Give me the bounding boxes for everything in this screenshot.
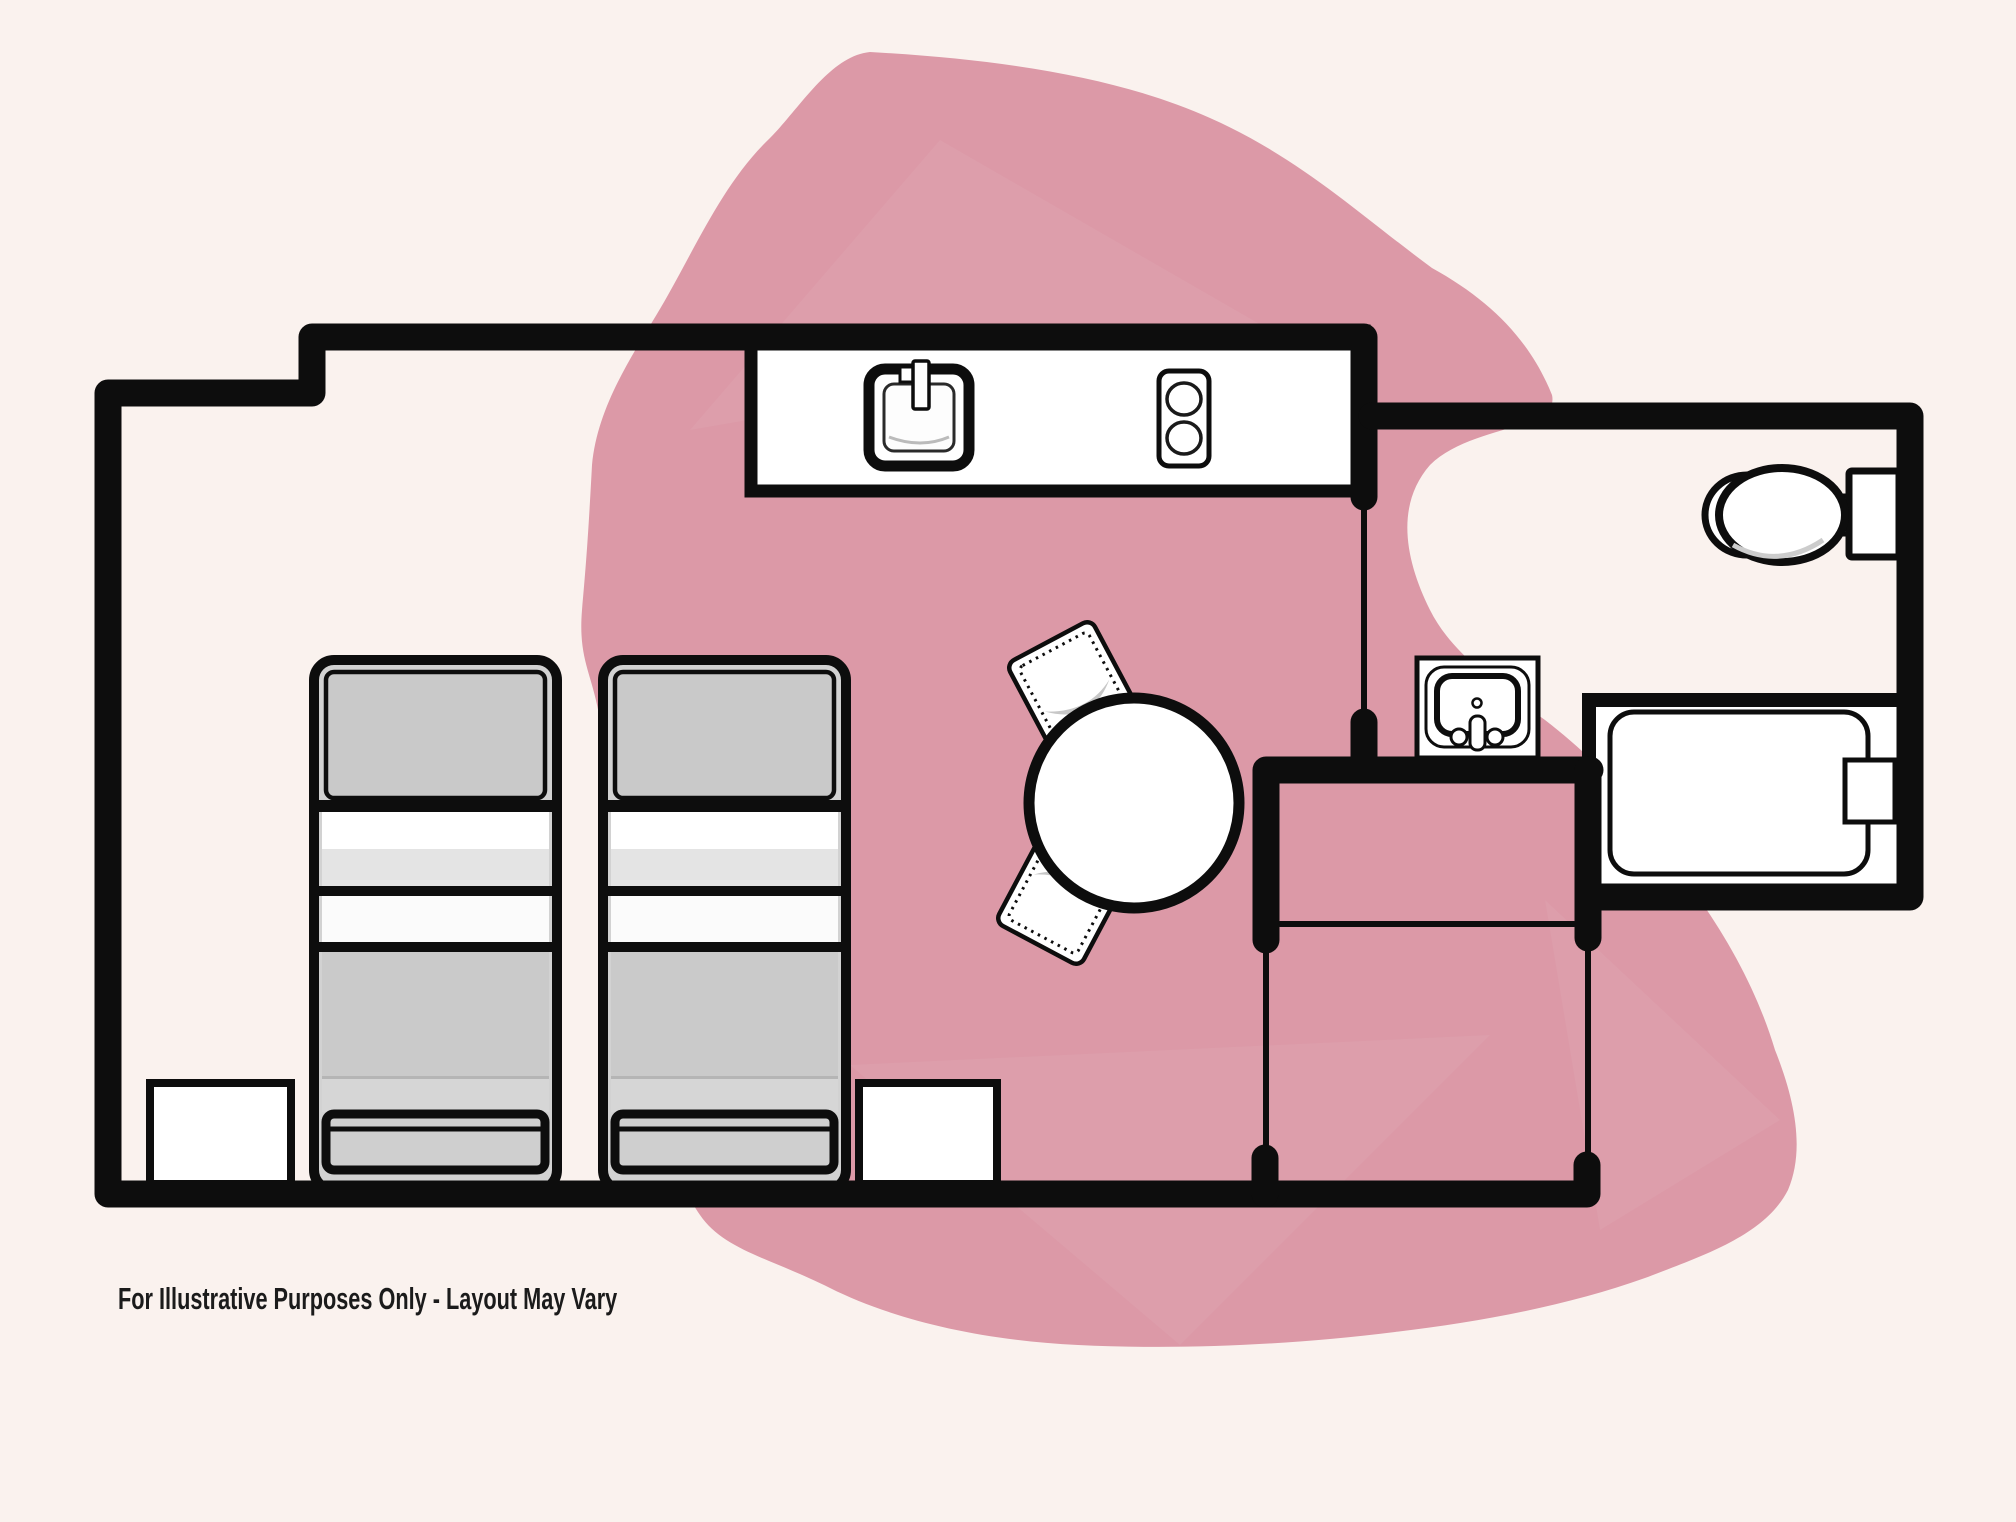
dining-table bbox=[1029, 698, 1239, 908]
vanity-drain bbox=[1473, 699, 1482, 708]
bed-blanket bbox=[611, 952, 838, 1076]
bed-pillow bbox=[615, 672, 834, 798]
floor-plan-illustration: For Illustrative Purposes Only - Layout … bbox=[0, 0, 2016, 1522]
faucet-handle bbox=[900, 367, 913, 382]
kitchen-counter bbox=[751, 331, 1364, 491]
toilet-tank bbox=[1849, 471, 1899, 557]
vanity-handle-left bbox=[1451, 729, 1467, 745]
bathtub-icon bbox=[1610, 712, 1895, 874]
bed-divider bbox=[318, 886, 553, 896]
vanity-sink-icon bbox=[1417, 658, 1538, 758]
bed-sheet-fold bbox=[322, 812, 549, 849]
vanity-faucet bbox=[1470, 716, 1485, 750]
bed-blanket-edge bbox=[322, 1079, 549, 1112]
bed-divider bbox=[318, 800, 553, 812]
faucet-spout bbox=[913, 361, 929, 409]
bed-divider bbox=[607, 942, 842, 952]
bed-sheet-fold bbox=[611, 812, 838, 849]
nightstand-right bbox=[859, 1083, 997, 1184]
bed-divider bbox=[318, 942, 553, 952]
bathtub-basin bbox=[1610, 712, 1868, 874]
twin-bed-1 bbox=[314, 660, 557, 1190]
bed-footboard bbox=[615, 1114, 834, 1170]
bathtub-faucet-box bbox=[1845, 760, 1895, 822]
stove-body bbox=[1159, 371, 1209, 466]
bed-divider bbox=[607, 800, 842, 812]
bed-blanket-edge bbox=[611, 1079, 838, 1112]
bed-sheet-shadow bbox=[611, 849, 838, 886]
bed-divider bbox=[607, 886, 842, 896]
twin-bed-2 bbox=[603, 660, 846, 1190]
stove-icon bbox=[1159, 371, 1209, 466]
kitchen-sink-icon bbox=[869, 361, 969, 466]
toilet-icon bbox=[1705, 468, 1899, 562]
bed-sheet-shadow bbox=[322, 849, 549, 886]
bed-pillow bbox=[326, 672, 545, 798]
vanity-handle-right bbox=[1487, 729, 1503, 745]
bed-sheet-band bbox=[611, 896, 838, 942]
bed-sheet-band bbox=[322, 896, 549, 942]
counter-top bbox=[751, 331, 1364, 491]
bed-blanket-line bbox=[611, 1076, 838, 1079]
disclaimer-text: For Illustrative Purposes Only - Layout … bbox=[118, 1281, 617, 1317]
bed-footboard bbox=[326, 1114, 545, 1170]
bed-blanket-line bbox=[322, 1076, 549, 1079]
bed-blanket bbox=[322, 952, 549, 1076]
nightstand-left bbox=[150, 1083, 291, 1184]
